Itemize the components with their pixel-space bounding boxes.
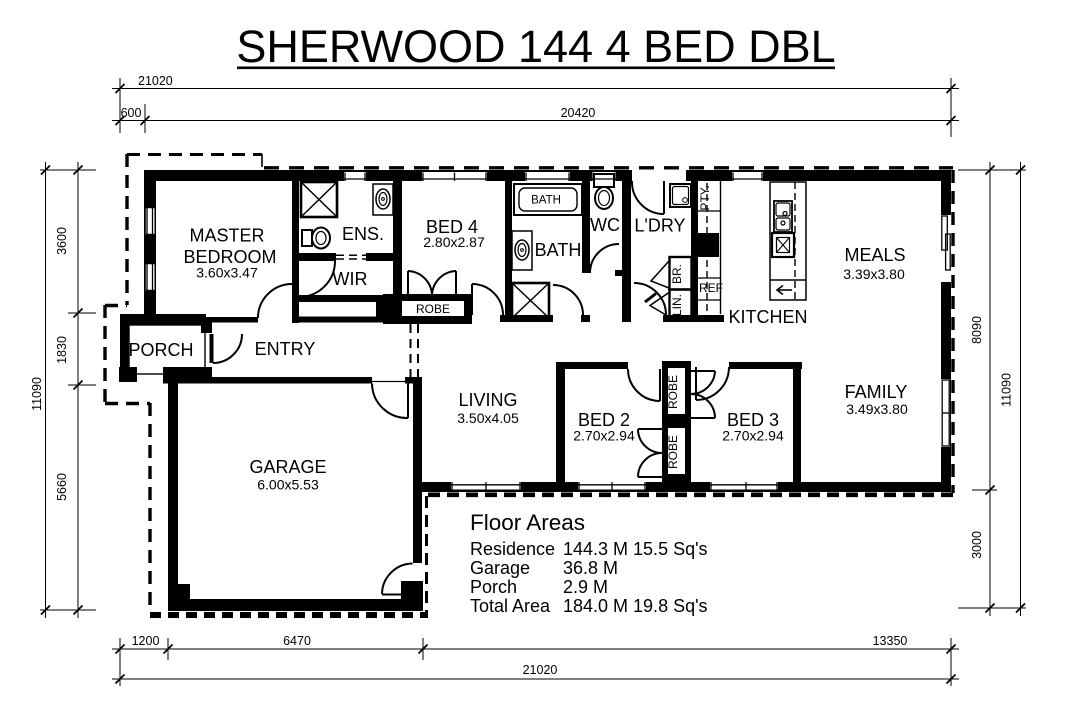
svg-text:ENS.: ENS.	[342, 224, 384, 244]
svg-text:3.39x3.80: 3.39x3.80	[843, 266, 905, 282]
svg-text:11090: 11090	[1000, 373, 1014, 407]
svg-text:20420: 20420	[561, 106, 596, 120]
svg-text:2.70x2.94: 2.70x2.94	[573, 428, 635, 444]
svg-text:3000: 3000	[970, 531, 984, 559]
svg-text:ROBE: ROBE	[666, 435, 680, 469]
svg-text:8090: 8090	[970, 316, 984, 344]
svg-text:WIR: WIR	[333, 269, 368, 289]
svg-text:144.3 M 15.5 Sq's: 144.3 M 15.5 Sq's	[563, 539, 708, 559]
svg-text:GARAGE: GARAGE	[249, 457, 326, 477]
svg-text:2.80x2.87: 2.80x2.87	[423, 234, 485, 250]
svg-text:3.50x4.05: 3.50x4.05	[457, 410, 519, 426]
svg-text:36.8 M: 36.8 M	[563, 558, 618, 578]
svg-text:3.49x3.80: 3.49x3.80	[846, 401, 908, 417]
svg-text:3.60x3.47: 3.60x3.47	[196, 265, 258, 281]
svg-text:1200: 1200	[132, 634, 160, 648]
svg-text:ROBE: ROBE	[416, 302, 450, 316]
svg-text:ROBE: ROBE	[666, 375, 680, 409]
svg-text:KITCHEN: KITCHEN	[728, 307, 807, 327]
svg-text:1830: 1830	[55, 336, 69, 364]
svg-text:Porch: Porch	[470, 577, 517, 597]
svg-text:Floor Areas: Floor Areas	[470, 510, 585, 535]
svg-text:BATH: BATH	[531, 195, 561, 207]
svg-text:11090: 11090	[30, 377, 44, 411]
svg-text:13350: 13350	[873, 634, 908, 648]
svg-text:LIVING: LIVING	[458, 390, 517, 410]
svg-text:L'DRY: L'DRY	[634, 216, 685, 236]
svg-text:BATH: BATH	[535, 240, 582, 260]
svg-text:BR.: BR.	[670, 264, 684, 284]
svg-text:REF: REF	[699, 281, 723, 295]
svg-text:SHERWOOD 144 4 BED DBL: SHERWOOD 144 4 BED DBL	[236, 21, 835, 72]
svg-text:MASTER: MASTER	[189, 226, 264, 246]
svg-text:21020: 21020	[138, 74, 173, 88]
svg-text:2.70x2.94: 2.70x2.94	[722, 428, 784, 444]
svg-text:6470: 6470	[283, 634, 311, 648]
svg-text:FAMILY: FAMILY	[845, 382, 908, 402]
svg-text:5660: 5660	[55, 473, 69, 501]
svg-text:Garage: Garage	[470, 558, 530, 578]
svg-text:PTY.: PTY.	[698, 185, 712, 210]
svg-text:LIN.: LIN.	[670, 294, 684, 316]
svg-text:2.9 M: 2.9 M	[563, 577, 608, 597]
svg-text:21020: 21020	[523, 663, 558, 677]
svg-text:3600: 3600	[55, 227, 69, 255]
svg-text:6.00x5.53: 6.00x5.53	[257, 477, 319, 493]
svg-text:PORCH: PORCH	[128, 340, 193, 360]
svg-text:Residence: Residence	[470, 539, 555, 559]
svg-text:ENTRY: ENTRY	[255, 339, 316, 359]
svg-text:Total Area: Total Area	[470, 596, 551, 616]
svg-text:600: 600	[121, 106, 142, 120]
svg-text:WC: WC	[590, 215, 620, 235]
svg-text:MEALS: MEALS	[844, 245, 905, 265]
svg-text:184.0 M 19.8 Sq's: 184.0 M 19.8 Sq's	[563, 596, 708, 616]
